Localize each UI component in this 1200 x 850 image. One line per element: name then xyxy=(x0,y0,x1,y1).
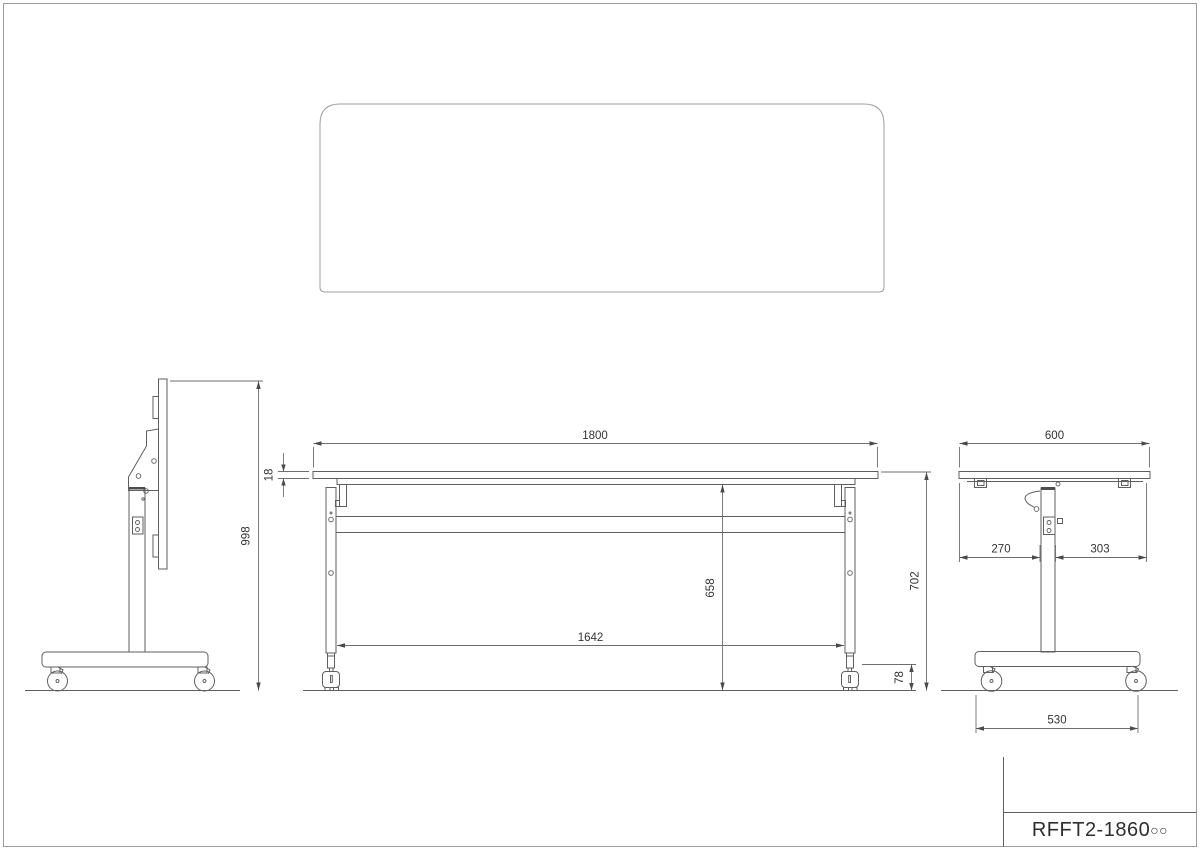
tabletop-slab xyxy=(313,472,878,479)
caster-right xyxy=(842,672,859,688)
leg-adjuster-left xyxy=(328,653,335,668)
dim-depth-segments: 270 303 xyxy=(960,483,1147,562)
tabletop-slab-side xyxy=(959,472,1150,479)
side-view: 600 270 303 530 xyxy=(941,430,1178,733)
panel-top-rail-end xyxy=(153,397,159,419)
latch-screw xyxy=(1047,529,1051,533)
side-view-folded: 998 xyxy=(25,379,263,691)
dim-label-base-span: 530 xyxy=(1047,715,1066,727)
caster-left xyxy=(323,672,340,688)
dim-top-thickness: 18 xyxy=(264,453,310,497)
caster-slot xyxy=(849,676,851,683)
latch-plate-side xyxy=(1044,517,1056,535)
technical-drawing-canvas: 998 xyxy=(0,0,1200,850)
drawing-sheet: 998 xyxy=(0,0,1200,850)
dim-depth: 600 xyxy=(960,430,1150,468)
dim-label-underside-height: 658 xyxy=(705,578,717,597)
latch-screw xyxy=(136,528,140,532)
dim-label-clear-height: 702 xyxy=(910,571,922,590)
dim-label-depth: 600 xyxy=(1045,430,1064,442)
pivot-dot xyxy=(142,498,144,500)
product-code-variant-suffix: ○○ xyxy=(1150,822,1168,838)
caster-wheel xyxy=(981,671,1002,692)
dim-label-caster-height: 78 xyxy=(894,671,906,684)
hook-bracket-right xyxy=(835,485,842,507)
dim-leg-span: 1642 xyxy=(337,632,844,648)
folded-tabletop-panel xyxy=(159,379,168,569)
hook-bracket-left xyxy=(340,485,347,507)
dim-caster-height: 78 xyxy=(862,665,916,691)
base-beam-side xyxy=(975,652,1140,667)
leg-screw xyxy=(329,571,334,576)
dim-label-leg-span: 1642 xyxy=(578,632,604,644)
dim-label-folded-height: 998 xyxy=(241,526,253,545)
panel-bottom-rail-end xyxy=(153,535,159,557)
column-side xyxy=(1041,488,1055,652)
top-view xyxy=(320,104,884,292)
front-view: 1800 18 658 1642 xyxy=(264,430,932,691)
column xyxy=(129,488,145,652)
caster-hub xyxy=(990,680,993,683)
latch-screw xyxy=(136,521,140,525)
leg-screw xyxy=(330,512,332,514)
frame-bracket xyxy=(1119,479,1131,488)
dim-folded-height: 998 xyxy=(170,381,263,691)
dim-base-span: 530 xyxy=(976,695,1138,733)
dim-label-depth-rear: 303 xyxy=(1090,544,1109,556)
dim-clear-height: 702 xyxy=(881,472,931,691)
caster-wheel xyxy=(1126,671,1147,692)
release-cable xyxy=(1025,491,1040,508)
product-code: RFFT2-1860○○ xyxy=(1032,819,1168,841)
column-cap xyxy=(1041,487,1055,490)
frame-bracket xyxy=(975,479,987,488)
leg-screw xyxy=(848,517,853,522)
caster-slot xyxy=(331,676,333,683)
bracket-screw xyxy=(152,459,157,464)
caster-wheel xyxy=(48,671,68,691)
leg-screw xyxy=(848,571,853,576)
leg-adjuster-right xyxy=(847,653,854,668)
top-view-tabletop-outline xyxy=(320,104,884,292)
caster-hub xyxy=(1135,680,1138,683)
latch-catch xyxy=(1058,519,1063,524)
bracket-screw xyxy=(136,474,141,479)
dim-label-width: 1800 xyxy=(582,430,608,442)
cable-pull-ring xyxy=(1034,507,1039,512)
caster-stem xyxy=(848,668,852,672)
sheet-border xyxy=(4,4,1197,847)
caster-wheel xyxy=(195,671,215,691)
leg-screw xyxy=(329,517,334,522)
underside-screw xyxy=(1056,482,1060,486)
caster-hub xyxy=(203,680,206,683)
caster-stem xyxy=(330,668,334,672)
dim-underside-height: 658 xyxy=(705,485,725,691)
column-cap xyxy=(129,487,145,490)
latch-screw xyxy=(1047,521,1051,525)
base-beam xyxy=(42,652,208,667)
dim-width: 1800 xyxy=(314,430,878,468)
title-block: RFFT2-1860○○ xyxy=(1004,757,1197,847)
leg-screw xyxy=(849,512,851,514)
product-code-text: RFFT2-1860 xyxy=(1032,819,1150,841)
folding-bracket-plate xyxy=(129,429,159,491)
caster-hub xyxy=(56,680,59,683)
dim-label-top-thickness: 18 xyxy=(264,469,276,482)
underframe-lip xyxy=(337,479,855,485)
dim-label-depth-front: 270 xyxy=(991,544,1010,556)
